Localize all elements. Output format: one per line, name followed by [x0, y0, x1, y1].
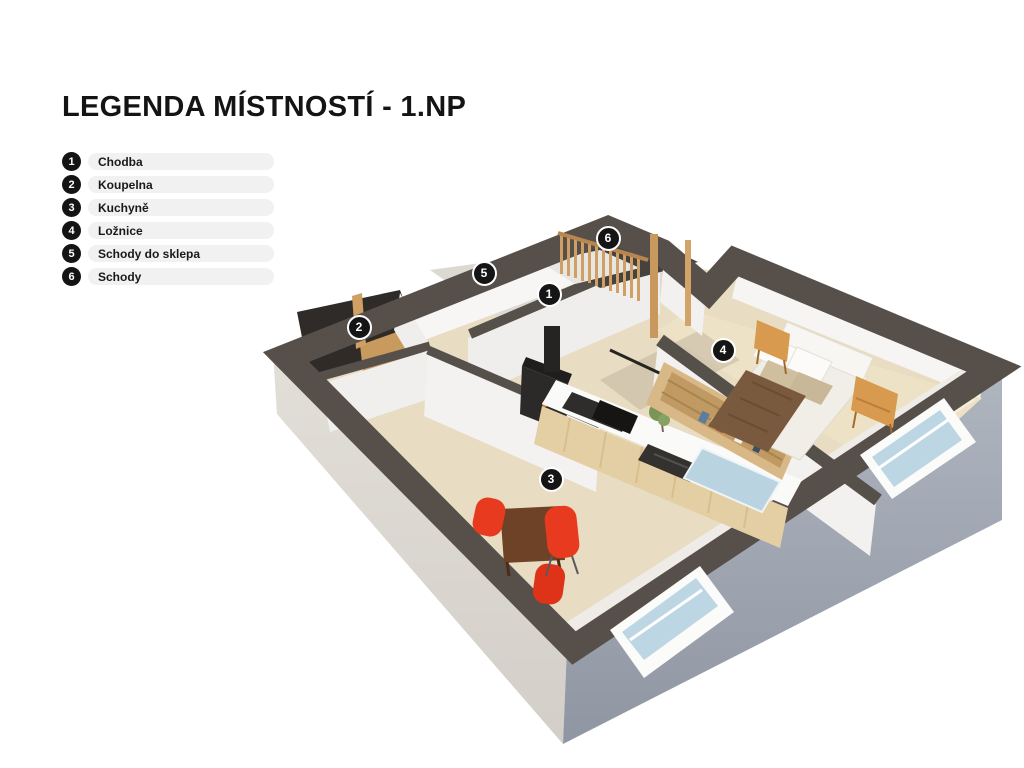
floorplan: 123456 — [0, 0, 1024, 768]
stove-chimney — [544, 326, 560, 372]
door-jamb-tall — [650, 234, 658, 338]
page: LEGENDA MÍSTNOSTÍ - 1.NP 1 Chodba 2 Koup… — [0, 0, 1024, 768]
floorplan-illustration — [0, 0, 1024, 768]
door-jamb-tall-2 — [685, 240, 691, 326]
